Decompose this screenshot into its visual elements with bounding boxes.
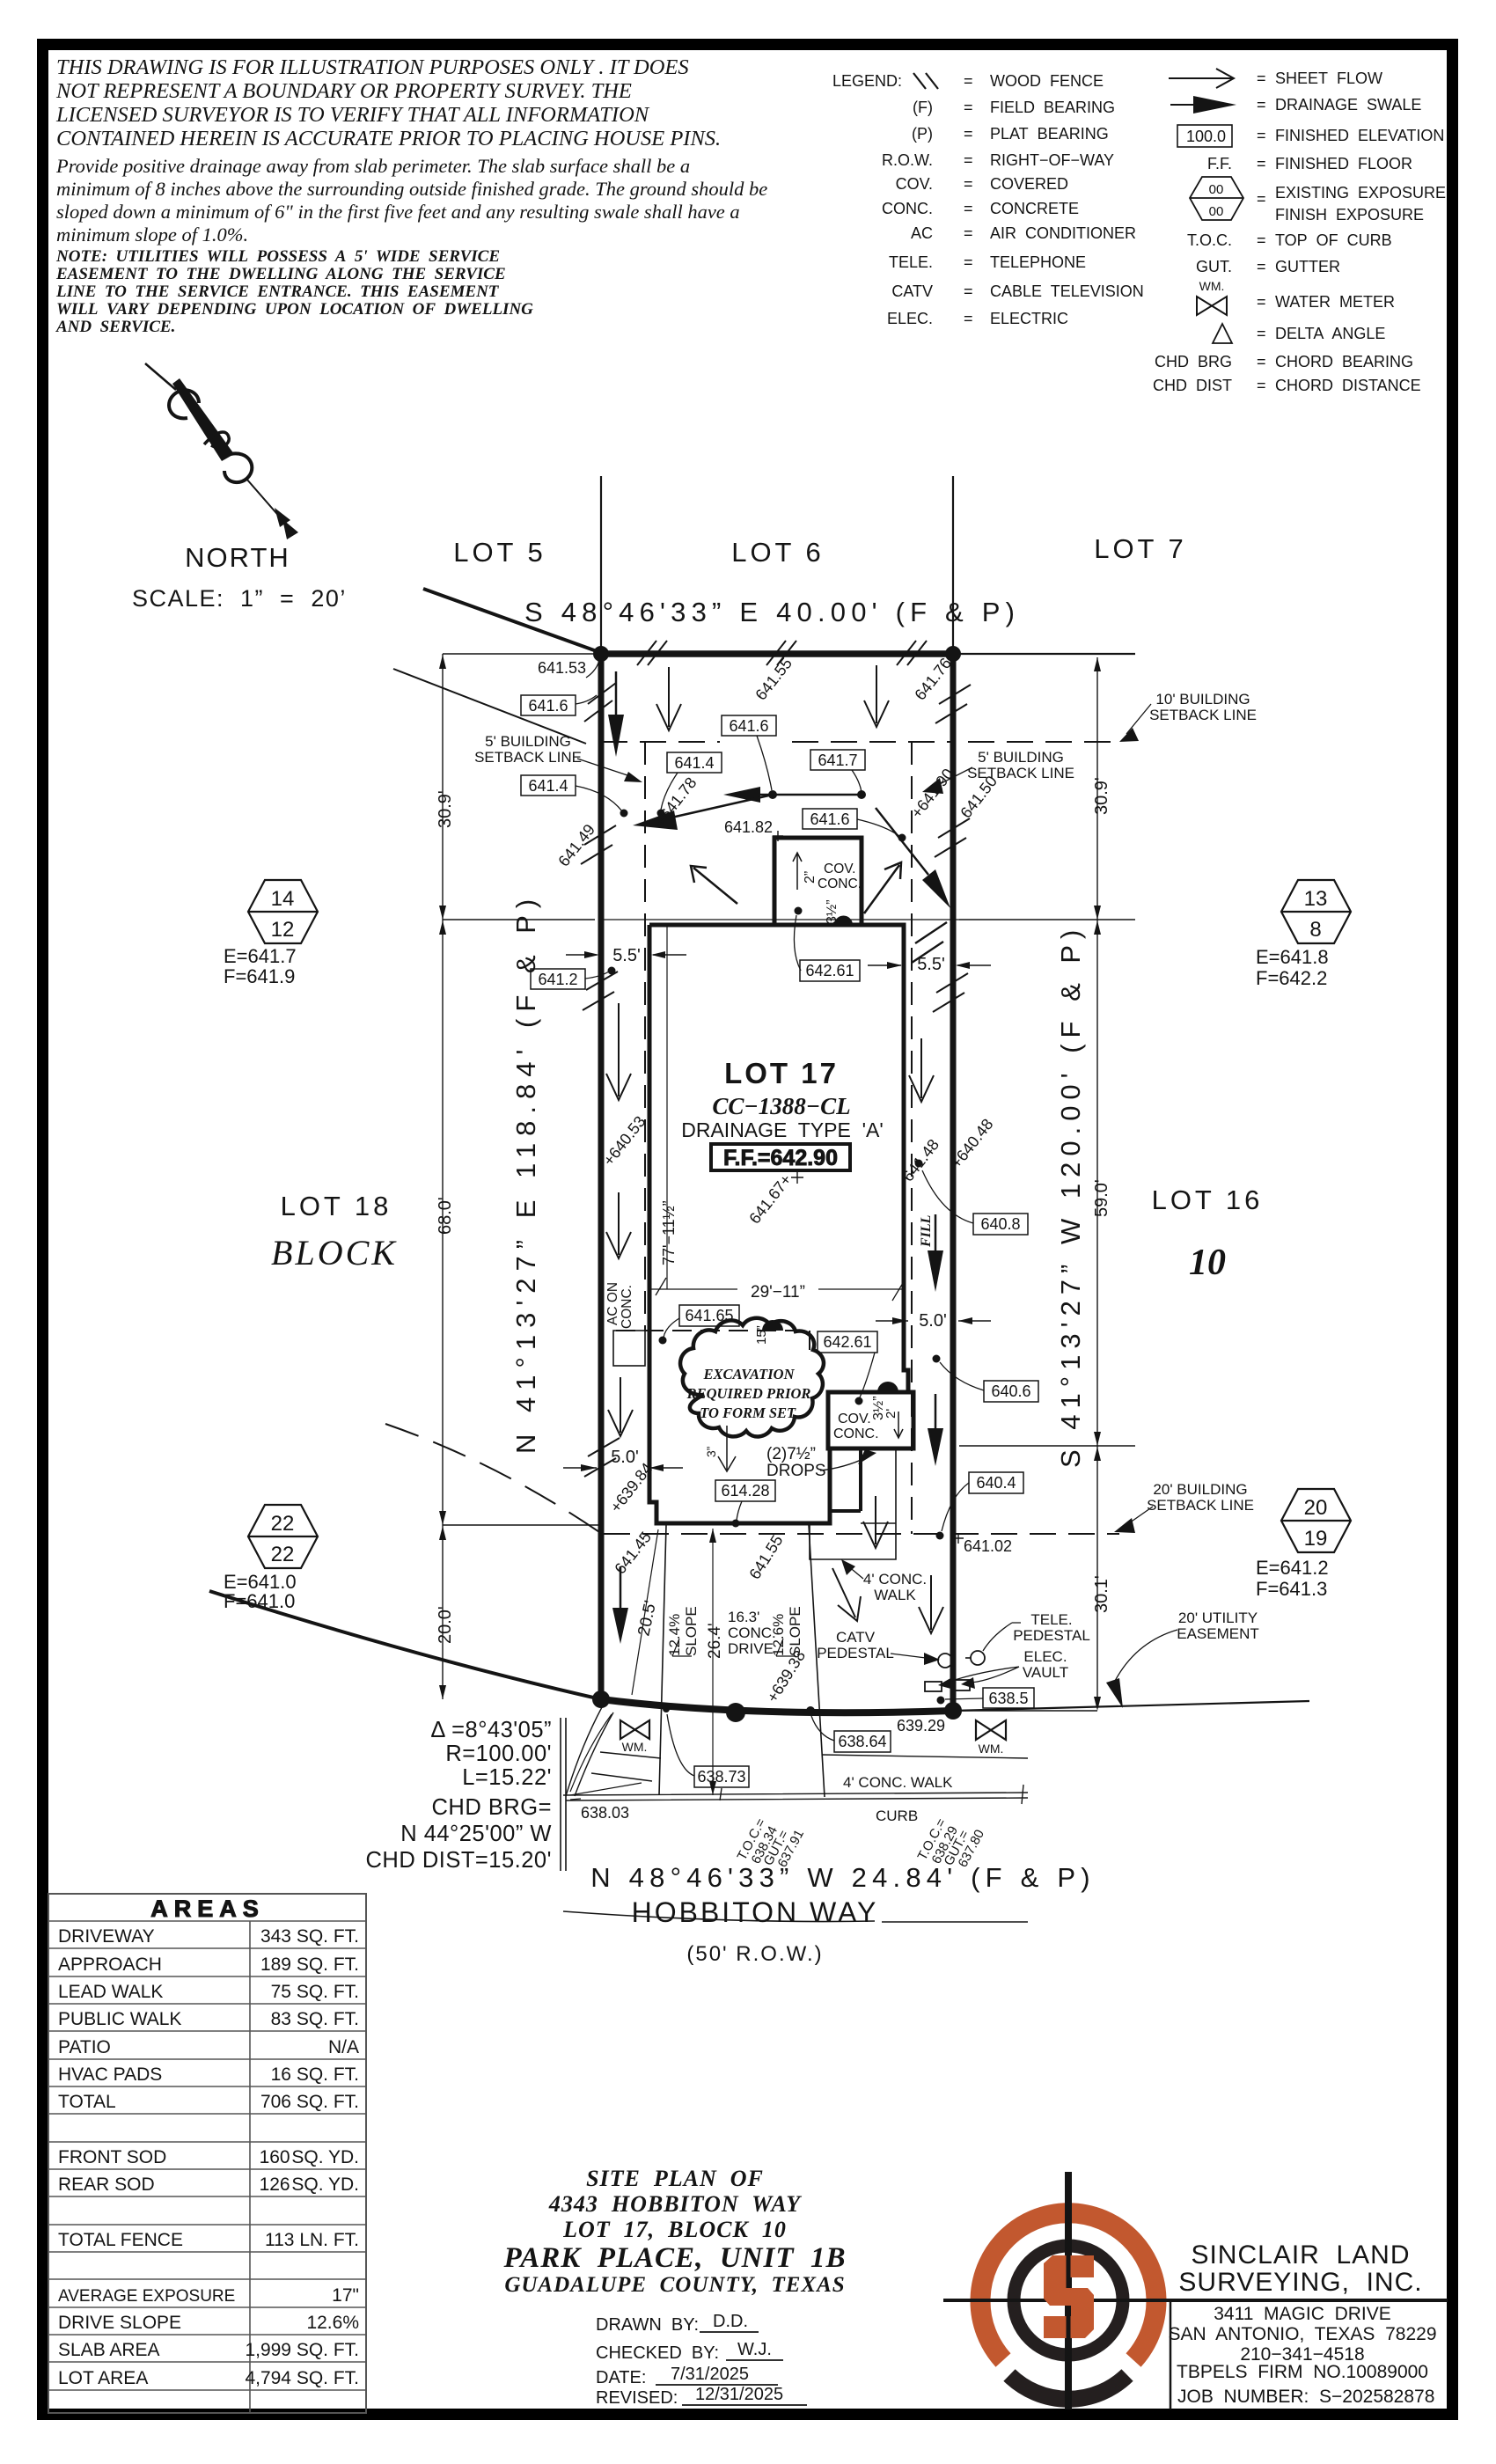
svg-text:AVERAGE EXPOSURE: AVERAGE EXPOSURE <box>58 2287 235 2306</box>
svg-text:TELE.: TELE. <box>889 253 933 271</box>
svg-text:W.J.: W.J. <box>737 2340 772 2359</box>
svg-text:T.O.C.: T.O.C. <box>1187 231 1232 249</box>
svg-text:REAR SOD: REAR SOD <box>58 2174 155 2195</box>
svg-text:12/31/2025: 12/31/2025 <box>695 2385 783 2404</box>
svg-text:LEGEND:: LEGEND: <box>832 72 902 90</box>
svg-text:THIS DRAWING IS FOR ILLUSTRATI: THIS DRAWING IS FOR ILLUSTRATION PURPOSE… <box>56 55 689 79</box>
svg-text:641.6: 641.6 <box>528 697 568 715</box>
svg-text:641.02: 641.02 <box>964 1537 1012 1555</box>
svg-text:=: = <box>1257 190 1266 208</box>
svg-text:TBPELS FIRM NO.10089000: TBPELS FIRM NO.10089000 <box>1177 2362 1428 2382</box>
svg-text:L=15.22': L=15.22' <box>462 1765 552 1790</box>
svg-text:FINISH EXPOSURE: FINISH EXPOSURE <box>1275 206 1424 224</box>
svg-text:HOBBITON WAY: HOBBITON WAY <box>632 1896 879 1928</box>
svg-text:343 SQ. FT.: 343 SQ. FT. <box>260 1926 359 1947</box>
svg-text:CHORD BEARING: CHORD BEARING <box>1275 353 1413 370</box>
svg-text:LOT AREA: LOT AREA <box>58 2368 148 2388</box>
svg-text:NORTH: NORTH <box>185 542 290 573</box>
svg-text:F=642.2: F=642.2 <box>1256 967 1327 989</box>
svg-text:FINISHED FLOOR: FINISHED FLOOR <box>1275 155 1412 172</box>
svg-text:614.28: 614.28 <box>721 1482 769 1500</box>
svg-text:75 SQ. FT.: 75 SQ. FT. <box>271 1982 359 2002</box>
svg-text:CATV: CATV <box>836 1629 876 1646</box>
svg-text:S 48°46'33” E 40.00' (F & P): S 48°46'33” E 40.00' (F & P) <box>524 597 1020 627</box>
svg-text:TO FORM SET.: TO FORM SET. <box>700 1404 797 1421</box>
svg-text:Δ =8°43'05”: Δ =8°43'05” <box>430 1718 552 1742</box>
svg-text:DRAWN BY:: DRAWN BY: <box>596 2315 699 2335</box>
svg-text:16 SQ. FT.: 16 SQ. FT. <box>271 2064 359 2085</box>
svg-text:N/A: N/A <box>328 2037 359 2057</box>
svg-text:GUADALUPE COUNTY, TEXAS: GUADALUPE COUNTY, TEXAS <box>504 2273 845 2297</box>
svg-text:sloped down a minimum of 6" in: sloped down a minimum of 6" in the first… <box>56 201 740 223</box>
svg-text:TELEPHONE: TELEPHONE <box>990 253 1086 271</box>
svg-text:N 41°13'27” E 118.84' (F & P): N 41°13'27” E 118.84' (F & P) <box>510 892 541 1454</box>
svg-text:=: = <box>1257 127 1266 144</box>
svg-text:638.03: 638.03 <box>581 1804 629 1822</box>
svg-text:PUBLIC WALK: PUBLIC WALK <box>58 2009 181 2029</box>
svg-text:F=641.3: F=641.3 <box>1256 1578 1327 1600</box>
svg-text:N 44°25'00” W: N 44°25'00” W <box>400 1822 552 1846</box>
svg-text:4' CONC. WALK: 4' CONC. WALK <box>843 1774 953 1791</box>
svg-text:FILL: FILL <box>919 1214 934 1248</box>
svg-text:COVERED: COVERED <box>990 175 1068 193</box>
svg-text:12: 12 <box>271 918 295 942</box>
svg-text:SETBACK LINE: SETBACK LINE <box>1147 1497 1254 1514</box>
svg-text:=: = <box>1257 293 1266 311</box>
svg-text:E=641.7: E=641.7 <box>224 945 297 967</box>
svg-text:641.4: 641.4 <box>674 754 714 772</box>
svg-text:GUTTER: GUTTER <box>1275 258 1340 275</box>
svg-text:100.0: 100.0 <box>1186 128 1226 145</box>
svg-text:PARK PLACE, UNIT 1B: PARK PLACE, UNIT 1B <box>502 2242 846 2274</box>
svg-text:30.9': 30.9' <box>436 790 455 828</box>
svg-text:AC: AC <box>911 224 933 242</box>
svg-text:DATE:: DATE: <box>596 2368 646 2387</box>
svg-text:5.0': 5.0' <box>611 1448 639 1467</box>
svg-text:REVISED:: REVISED: <box>596 2388 678 2408</box>
svg-text:LEAD WALK: LEAD WALK <box>58 1982 163 2002</box>
svg-text:E=641.8: E=641.8 <box>1256 946 1329 968</box>
svg-text:DRAINAGE TYPE 'A': DRAINAGE TYPE 'A' <box>681 1118 883 1141</box>
svg-text:LOT 6: LOT 6 <box>731 537 825 568</box>
svg-text:00: 00 <box>1209 182 1224 197</box>
svg-text:00: 00 <box>1209 204 1224 219</box>
svg-text:SHEET FLOW: SHEET FLOW <box>1275 70 1382 87</box>
svg-text:640.8: 640.8 <box>980 1215 1020 1233</box>
svg-text:=: = <box>1257 231 1266 249</box>
svg-text:DRAINAGE SWALE: DRAINAGE SWALE <box>1275 96 1421 114</box>
svg-text:638.64: 638.64 <box>838 1733 886 1750</box>
svg-text:AC ON: AC ON <box>605 1282 620 1325</box>
svg-text:126 SQ. YD.: 126 SQ. YD. <box>260 2174 359 2195</box>
svg-text:=: = <box>964 175 973 193</box>
svg-text:638.5: 638.5 <box>988 1690 1028 1707</box>
svg-text:EXISTING EXPOSURE: EXISTING EXPOSURE <box>1275 184 1446 202</box>
svg-text:SLAB AREA: SLAB AREA <box>58 2340 160 2360</box>
svg-text:FIELD BEARING: FIELD BEARING <box>990 99 1115 116</box>
svg-text:JOB NUMBER: S−202582878: JOB NUMBER: S−202582878 <box>1177 2387 1434 2407</box>
svg-text:641.7: 641.7 <box>818 752 857 769</box>
svg-text:=: = <box>964 282 973 300</box>
svg-text:F.F.=642.90: F.F.=642.90 <box>723 1146 838 1170</box>
svg-text:22: 22 <box>271 1512 295 1536</box>
svg-text:5' BUILDING: 5' BUILDING <box>485 733 571 750</box>
svg-text:VAULT: VAULT <box>1023 1664 1068 1681</box>
svg-text:R=100.00': R=100.00' <box>445 1742 552 1766</box>
svg-text:LOT 17, BLOCK 10: LOT 17, BLOCK 10 <box>562 2217 787 2242</box>
svg-text:ELECTRIC: ELECTRIC <box>990 310 1068 327</box>
svg-text:(F): (F) <box>913 99 933 116</box>
svg-text:640.4: 640.4 <box>976 1474 1016 1492</box>
svg-text:13: 13 <box>1304 887 1328 911</box>
svg-text:641.2: 641.2 <box>538 971 577 988</box>
svg-text:=: = <box>964 200 973 217</box>
svg-text:S 41°13'27” W 120.00' (F & P): S 41°13'27” W 120.00' (F & P) <box>1055 924 1086 1468</box>
svg-text:30.9': 30.9' <box>1092 777 1111 815</box>
svg-text:SAN ANTONIO, TEXAS 78229: SAN ANTONIO, TEXAS 78229 <box>1168 2324 1436 2344</box>
svg-text:5' BUILDING: 5' BUILDING <box>978 749 1064 766</box>
svg-text:SLOPE: SLOPE <box>683 1606 700 1656</box>
svg-text:CONC.: CONC. <box>818 876 862 891</box>
svg-text:FRONT SOD: FRONT SOD <box>58 2147 166 2167</box>
svg-text:F.F.: F.F. <box>1207 155 1232 172</box>
svg-text:CHD BRG=: CHD BRG= <box>432 1795 552 1820</box>
svg-text:PLAT BEARING: PLAT BEARING <box>990 125 1109 143</box>
svg-text:26.4': 26.4' <box>706 1623 724 1659</box>
svg-text:7/31/2025: 7/31/2025 <box>671 2365 749 2384</box>
svg-text:PATIO: PATIO <box>58 2037 111 2057</box>
svg-text:minimum slope of 1.0%.: minimum slope of 1.0%. <box>56 224 248 246</box>
svg-text:CC−1388−CL: CC−1388−CL <box>712 1093 850 1119</box>
svg-text:22: 22 <box>271 1543 295 1566</box>
svg-text:=: = <box>1257 353 1266 370</box>
svg-text:=: = <box>1257 155 1266 172</box>
svg-text:641.6: 641.6 <box>729 717 768 735</box>
svg-text:CATV: CATV <box>891 282 933 300</box>
svg-text:642.61: 642.61 <box>823 1333 871 1351</box>
svg-text:TOTAL: TOTAL <box>58 2092 116 2112</box>
svg-text:+640.53: +640.53 <box>599 1112 649 1169</box>
svg-text:640.6: 640.6 <box>991 1382 1030 1400</box>
svg-text:LOT 7: LOT 7 <box>1094 533 1187 564</box>
svg-text:CURB: CURB <box>876 1808 918 1824</box>
svg-text:CHORD DISTANCE: CHORD DISTANCE <box>1275 377 1421 394</box>
svg-text:WM.: WM. <box>622 1740 648 1754</box>
svg-text:DELTA ANGLE: DELTA ANGLE <box>1275 325 1385 342</box>
svg-text:TOP OF CURB: TOP OF CURB <box>1275 231 1392 249</box>
svg-text:F=641.0: F=641.0 <box>224 1590 295 1612</box>
svg-text:19: 19 <box>1304 1527 1328 1551</box>
svg-text:642.61: 642.61 <box>805 962 854 979</box>
svg-text:641.82: 641.82 <box>724 818 773 836</box>
svg-text:59.0': 59.0' <box>1092 1179 1111 1217</box>
svg-text:COV.: COV. <box>838 1412 871 1426</box>
svg-text:=: = <box>964 151 973 169</box>
svg-text:LOT 18: LOT 18 <box>281 1191 392 1221</box>
svg-text:641.55: 641.55 <box>752 655 796 704</box>
svg-text:PEDESTAL: PEDESTAL <box>817 1645 894 1661</box>
svg-text:638.73: 638.73 <box>697 1768 745 1786</box>
svg-text:=: = <box>964 310 973 327</box>
svg-text:160 SQ. YD.: 160 SQ. YD. <box>260 2147 359 2167</box>
svg-text:4,794 SQ. FT.: 4,794 SQ. FT. <box>245 2368 359 2388</box>
svg-text:(P): (P) <box>912 125 933 143</box>
svg-text:COV.: COV. <box>896 175 933 193</box>
svg-text:=: = <box>1257 96 1266 114</box>
svg-text:LOT 16: LOT 16 <box>1152 1184 1264 1215</box>
svg-text:15”: 15” <box>754 1325 769 1345</box>
svg-text:WALK: WALK <box>874 1587 916 1603</box>
svg-text:4343 HOBBITON WAY: 4343 HOBBITON WAY <box>548 2191 802 2217</box>
svg-text:BLOCK: BLOCK <box>271 1233 398 1272</box>
svg-text:=: = <box>1257 377 1266 394</box>
svg-text:641.65: 641.65 <box>685 1307 733 1324</box>
svg-text:20' UTILITY: 20' UTILITY <box>1178 1610 1258 1626</box>
svg-text:3”: 3” <box>704 1446 718 1457</box>
svg-text:189 SQ. FT.: 189 SQ. FT. <box>260 1954 359 1975</box>
svg-text:14: 14 <box>271 887 295 911</box>
svg-text:HVAC PADS: HVAC PADS <box>58 2064 162 2085</box>
svg-text:AIR CONDITIONER: AIR CONDITIONER <box>990 224 1136 242</box>
svg-text:2”: 2” <box>803 871 818 884</box>
svg-text:4' CONC.: 4' CONC. <box>863 1571 927 1588</box>
svg-text:17": 17" <box>332 2285 359 2306</box>
svg-text:LOT 17: LOT 17 <box>724 1057 839 1089</box>
svg-text:FINISHED ELEVATION: FINISHED ELEVATION <box>1275 127 1444 144</box>
svg-text:CHD DIST: CHD DIST <box>1153 377 1232 394</box>
svg-text:CHD DIST=15.20': CHD DIST=15.20' <box>366 1848 553 1873</box>
svg-text:DROPS: DROPS <box>766 1462 826 1480</box>
svg-text:641.55: 641.55 <box>745 1532 786 1582</box>
svg-text:ELEC.: ELEC. <box>887 310 933 327</box>
svg-text:NOTE: UTILITIES WILL POSSES: NOTE: UTILITIES WILL POSSESS A 5' WIDE S… <box>55 247 500 266</box>
svg-text:TELE.: TELE. <box>1030 1611 1072 1628</box>
svg-text:CHECKED BY:: CHECKED BY: <box>596 2343 719 2363</box>
svg-text:AND SERVICE.: AND SERVICE. <box>55 318 175 336</box>
svg-text:DRIVE SLOPE: DRIVE SLOPE <box>58 2313 181 2333</box>
svg-text:PEDESTAL: PEDESTAL <box>1013 1627 1090 1644</box>
svg-text:EASEMENT TO THE DWELLING A: EASEMENT TO THE DWELLING ALONG THE SERVI… <box>55 265 506 283</box>
svg-text:TOTAL FENCE: TOTAL FENCE <box>58 2230 183 2250</box>
svg-text:5.5': 5.5' <box>917 955 945 974</box>
svg-text:RIGHT−OF−WAY: RIGHT−OF−WAY <box>990 151 1114 169</box>
svg-text:CABLE TELEVISION: CABLE TELEVISION <box>990 282 1144 300</box>
svg-text:EASEMENT: EASEMENT <box>1177 1625 1259 1642</box>
svg-text:REQUIRED PRIOR: REQUIRED PRIOR <box>686 1385 811 1402</box>
svg-text:641.6: 641.6 <box>810 810 849 828</box>
svg-text:29'−11”: 29'−11” <box>751 1283 805 1302</box>
svg-text:F=641.9: F=641.9 <box>224 965 295 987</box>
svg-text:641.76: 641.76 <box>911 655 955 704</box>
svg-text:=: = <box>964 253 973 271</box>
svg-text:SITE PLAN OF: SITE PLAN OF <box>586 2166 764 2191</box>
svg-text:CONC.: CONC. <box>882 200 933 217</box>
svg-text:DRIVE: DRIVE <box>728 1640 774 1657</box>
svg-text:5.0': 5.0' <box>919 1311 947 1331</box>
svg-text:LINE TO THE SERVICE ENTRAN: LINE TO THE SERVICE ENTRANCE. THIS EASEM… <box>55 282 500 301</box>
svg-text:CONC.: CONC. <box>620 1285 634 1329</box>
svg-text:20: 20 <box>1304 1496 1328 1520</box>
svg-text:EXCAVATION: EXCAVATION <box>702 1366 795 1382</box>
svg-text:SETBACK LINE: SETBACK LINE <box>474 749 582 766</box>
svg-text:3411 MAGIC DRIVE: 3411 MAGIC DRIVE <box>1214 2304 1391 2324</box>
svg-text:83 SQ. FT.: 83 SQ. FT. <box>271 2009 359 2029</box>
svg-text:(50' R.O.W.): (50' R.O.W.) <box>686 1942 823 1966</box>
svg-text:WILL VARY DEPENDING UPON L: WILL VARY DEPENDING UPON LOCATION OF DWE… <box>56 300 533 319</box>
svg-text:706 SQ. FT.: 706 SQ. FT. <box>260 2092 359 2112</box>
svg-text:WM.: WM. <box>1199 279 1225 293</box>
svg-text:113 LN. FT.: 113 LN. FT. <box>265 2230 359 2250</box>
svg-text:8: 8 <box>1309 918 1321 942</box>
svg-text:APPROACH: APPROACH <box>58 1954 162 1975</box>
svg-text:minimum of 8 inches above the: minimum of 8 inches above the surroundin… <box>56 178 767 200</box>
svg-text:2': 2' <box>884 1409 898 1419</box>
svg-text:641.49: 641.49 <box>554 821 598 870</box>
svg-text:LOT 5: LOT 5 <box>453 537 546 568</box>
svg-text:1,999 SQ. FT.: 1,999 SQ. FT. <box>245 2340 359 2360</box>
svg-text:641.45: 641.45 <box>611 1529 655 1578</box>
svg-text:30.1': 30.1' <box>1092 1575 1111 1613</box>
svg-text:ELEC.: ELEC. <box>1023 1648 1067 1665</box>
svg-text:=: = <box>1257 258 1266 275</box>
svg-text:DRIVEWAY: DRIVEWAY <box>58 1926 155 1947</box>
svg-text:=: = <box>964 224 973 242</box>
svg-text:R.O.W.: R.O.W. <box>882 151 933 169</box>
svg-text:CONC.: CONC. <box>833 1426 879 1441</box>
svg-text:=: = <box>1257 325 1266 342</box>
svg-text:Provide positive drainage away: Provide positive drainage away from slab… <box>55 155 690 177</box>
svg-text:(2)7½”: (2)7½” <box>766 1445 816 1463</box>
svg-text:AREAS: AREAS <box>150 1896 265 1922</box>
svg-text:E=641.2: E=641.2 <box>1256 1557 1329 1579</box>
svg-text:=: = <box>1257 70 1266 87</box>
svg-text:12.6%: 12.6% <box>306 2313 359 2333</box>
svg-text:10: 10 <box>1189 1243 1226 1283</box>
svg-text:10' BUILDING: 10' BUILDING <box>1155 691 1250 708</box>
svg-text:20.5': 20.5' <box>634 1599 660 1638</box>
svg-text:D.D.: D.D. <box>713 2312 748 2331</box>
svg-text:CONCRETE: CONCRETE <box>990 200 1079 217</box>
svg-text:WM.: WM. <box>979 1742 1004 1756</box>
svg-text:LICENSED SURVEYOR IS TO VERIFY: LICENSED SURVEYOR IS TO VERIFY THAT ALL … <box>55 103 650 127</box>
svg-text:CONTAINED HEREIN IS ACCURATE P: CONTAINED HEREIN IS ACCURATE PRIOR TO PL… <box>56 127 721 150</box>
svg-text:+641.90: +641.90 <box>907 765 957 821</box>
svg-text:WOOD FENCE: WOOD FENCE <box>990 72 1104 90</box>
svg-text:641.4: 641.4 <box>528 777 568 795</box>
svg-text:16.3': 16.3' <box>728 1609 759 1625</box>
svg-text:641.53: 641.53 <box>538 659 586 677</box>
svg-text:77'−11½”: 77'−11½” <box>660 1200 678 1265</box>
svg-text:SETBACK LINE: SETBACK LINE <box>1149 707 1257 723</box>
svg-text:COV.: COV. <box>824 862 855 876</box>
svg-text:NOT REPRESENT A BOUNDARY OR PR: NOT REPRESENT A BOUNDARY OR PROPERTY SUR… <box>55 79 632 103</box>
svg-text:20.0': 20.0' <box>436 1606 455 1644</box>
svg-text:639.29: 639.29 <box>897 1717 945 1734</box>
svg-text:SINCLAIR LAND: SINCLAIR LAND <box>1191 2240 1410 2270</box>
svg-text:SCALE: 1” = 20’: SCALE: 1” = 20’ <box>132 585 347 612</box>
svg-text:SURVEYING, INC.: SURVEYING, INC. <box>1178 2268 1422 2297</box>
svg-text:=: = <box>964 99 973 116</box>
svg-text:SETBACK LINE: SETBACK LINE <box>967 765 1074 781</box>
svg-text:641.67+: 641.67+ <box>745 1170 795 1227</box>
svg-text:=: = <box>964 125 973 143</box>
svg-text:N 48°46'33” W 24.84' (F & P): N 48°46'33” W 24.84' (F & P) <box>590 1862 1095 1893</box>
svg-text:5.5': 5.5' <box>612 946 641 965</box>
svg-text:=: = <box>964 72 973 90</box>
svg-text:CHD BRG: CHD BRG <box>1155 353 1232 370</box>
svg-text:GUT.: GUT. <box>1196 258 1232 275</box>
svg-text:WATER METER: WATER METER <box>1275 293 1395 311</box>
svg-text:CONC.: CONC. <box>728 1624 776 1641</box>
svg-text:20' BUILDING: 20' BUILDING <box>1153 1481 1247 1498</box>
svg-text:68.0': 68.0' <box>436 1197 455 1235</box>
